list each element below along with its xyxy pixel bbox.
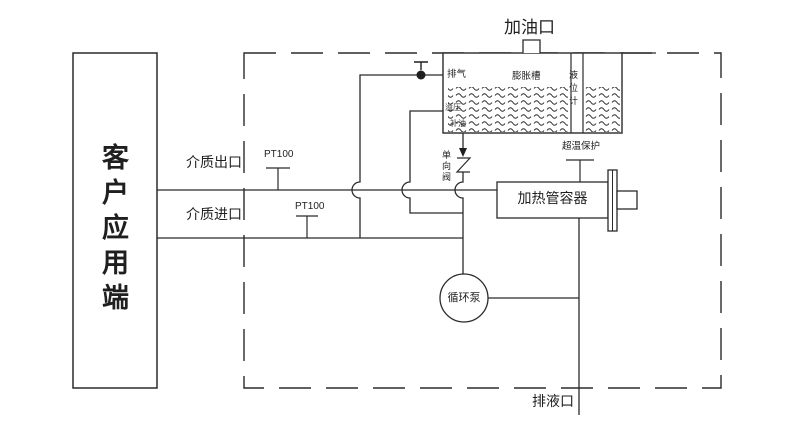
overtemp-probe [566, 160, 594, 182]
makeup-label: 补油 [450, 120, 466, 129]
fill-port-label: 加油口 [504, 19, 555, 38]
pt100-outlet-probe [266, 168, 290, 190]
relief-label: 溢压 [445, 104, 461, 113]
check-valve-line [455, 133, 470, 274]
vent-valve [414, 62, 428, 80]
medium-inlet-label: 介质进口 [186, 208, 242, 223]
expansion-tank [443, 40, 656, 133]
schematic-canvas: 客户应用端 加油口 排气 膨胀槽 液位计 溢压 补油 单向阀 超温保护 加热管容… [0, 0, 800, 437]
vent-label: 排气 [447, 70, 466, 80]
drain-label: 排液口 [532, 395, 574, 410]
pump-label: 循环泵 [443, 292, 485, 304]
pt100-outlet-label: PT100 [264, 149, 293, 160]
flow-arrow-icon [459, 148, 467, 157]
expansion-tank-label: 膨胀槽 [512, 72, 541, 82]
check-valve-label: 单向阀 [441, 150, 450, 183]
check-valve-icon [457, 158, 470, 172]
overtemp-label: 超温保护 [562, 142, 600, 152]
heater-label: 加热管容器 [497, 192, 608, 207]
fill-port-nozzle [523, 40, 540, 53]
liquid-waves [448, 87, 568, 132]
pt100-inlet-probe [296, 216, 318, 238]
medium-outlet-label: 介质出口 [186, 156, 242, 171]
liquid-waves [585, 87, 620, 132]
heater-terminal-box [617, 191, 637, 209]
pt100-inlet-label: PT100 [295, 201, 324, 212]
customer-box-label: 客户应用端 [99, 143, 126, 328]
level-gauge-label: 液位计 [568, 70, 577, 109]
